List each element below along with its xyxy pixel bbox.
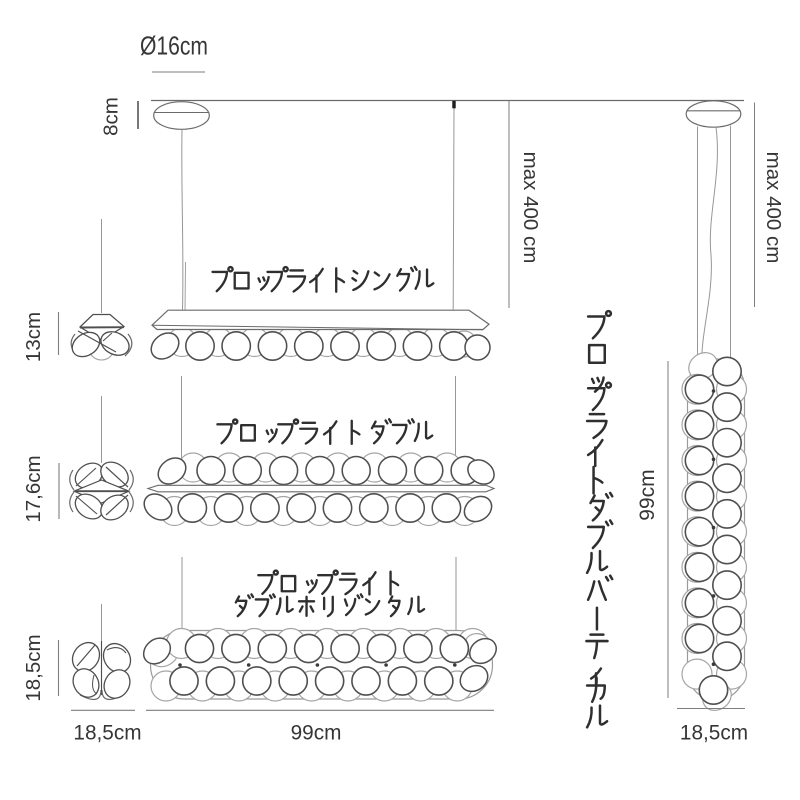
svg-text:18,5cm: 18,5cm (22, 634, 45, 701)
svg-text:17,6cm: 17,6cm (22, 455, 45, 522)
svg-text:13cm: 13cm (22, 312, 45, 362)
svg-text:99cm: 99cm (291, 722, 342, 745)
svg-text:max 400 cm: max 400 cm (519, 152, 542, 264)
svg-text:max 400 cm: max 400 cm (762, 152, 785, 264)
svg-text:18,5cm: 18,5cm (73, 722, 141, 745)
svg-text:8cm: 8cm (100, 97, 123, 136)
svg-text:99cm: 99cm (636, 469, 659, 520)
svg-text:18,5cm: 18,5cm (680, 722, 748, 745)
svg-text:Ø16cm: Ø16cm (140, 31, 208, 61)
